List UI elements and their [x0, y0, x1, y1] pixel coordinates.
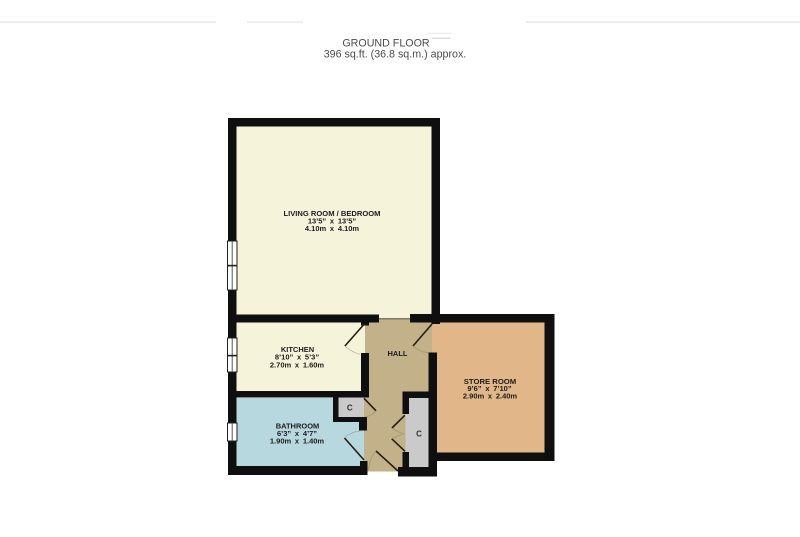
svg-text:4.10m x 4.10m: 4.10m x 4.10m — [305, 224, 360, 233]
svg-text:1.90m x 1.40m: 1.90m x 1.40m — [270, 437, 325, 446]
svg-text:2.90m x 2.40m: 2.90m x 2.40m — [463, 391, 518, 400]
svg-text:2.70m x 1.60m: 2.70m x 1.60m — [270, 361, 325, 370]
svg-text:HALL: HALL — [388, 349, 408, 358]
svg-text:396 sq.ft. (36.8 sq.m.) approx: 396 sq.ft. (36.8 sq.m.) approx. — [324, 49, 467, 61]
svg-text:C: C — [416, 429, 422, 438]
svg-text:C: C — [347, 404, 353, 413]
